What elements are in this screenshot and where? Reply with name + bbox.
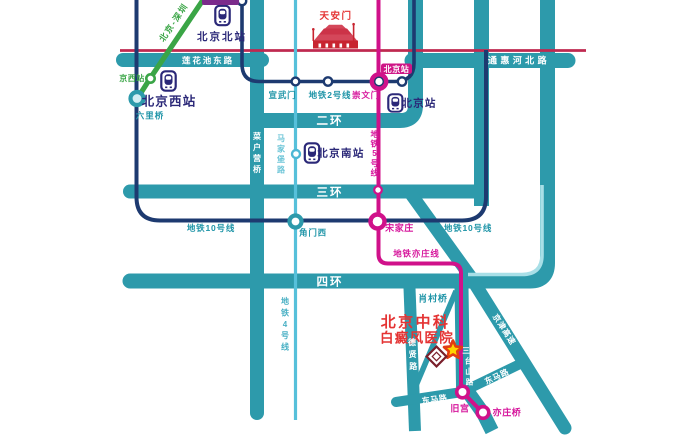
svg-text:亦庄桥: 亦庄桥	[493, 407, 522, 418]
svg-text:北京站: 北京站	[384, 64, 410, 74]
svg-text:二环: 二环	[317, 115, 344, 128]
svg-text:四环: 四环	[317, 276, 344, 289]
svg-text:白癜风医院: 白癜风医院	[380, 330, 454, 346]
svg-text:三环: 三环	[317, 186, 344, 199]
svg-text:地铁10号线: 地铁10号线	[444, 223, 492, 233]
svg-text:地铁10号线: 地铁10号线	[187, 223, 235, 233]
svg-text:角门西: 角门西	[299, 228, 327, 238]
svg-text:天安门: 天安门	[319, 10, 352, 22]
svg-text:宣武门: 宣武门	[269, 90, 297, 100]
svg-text:马家堡路: 马家堡路	[277, 134, 286, 175]
svg-text:北京南站: 北京南站	[317, 147, 365, 160]
svg-text:肖村桥: 肖村桥	[418, 293, 448, 304]
svg-text:崇文门: 崇文门	[352, 90, 380, 100]
svg-text:北京站: 北京站	[401, 97, 436, 110]
svg-text:旧宫: 旧宫	[450, 403, 469, 414]
svg-text:通惠河北路: 通惠河北路	[488, 55, 550, 66]
svg-text:宋家庄: 宋家庄	[384, 222, 414, 233]
svg-text:北京中科: 北京中科	[381, 313, 451, 331]
svg-text:地铁2号线: 地铁2号线	[309, 90, 352, 100]
svg-text:北京北站: 北京北站	[197, 30, 247, 43]
svg-text:地铁亦庄线: 地铁亦庄线	[393, 249, 440, 259]
svg-text:北京西站: 北京西站	[142, 94, 197, 109]
svg-text:京西站: 京西站	[119, 73, 145, 83]
svg-text:莲花池东路: 莲花池东路	[182, 56, 234, 66]
svg-text:六里桥: 六里桥	[136, 111, 165, 121]
